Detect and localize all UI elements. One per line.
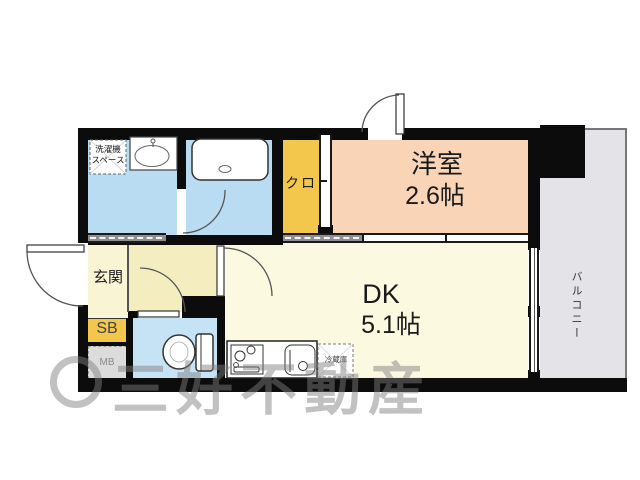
refrigerator-label: 冷蔵庫	[318, 356, 354, 364]
dk-label: DK	[321, 281, 441, 308]
kitchen-icon	[227, 341, 317, 378]
dk-size: 5.1帖	[321, 313, 461, 338]
entrance-door-icon	[27, 245, 84, 306]
meter-box-label: MB	[88, 358, 126, 368]
shoe-box-label: SB	[88, 321, 126, 337]
western-room-label: 洋室	[377, 151, 497, 177]
floorplan: 洗濯機 スペース クロ 洋室 2.6帖 DK 5.1帖 玄関 SB MB バルコ…	[0, 0, 640, 480]
dk-door-icon	[217, 246, 272, 296]
washbasin-icon	[130, 137, 177, 170]
western-room-size: 2.6帖	[377, 184, 493, 209]
top-door-icon	[362, 94, 404, 134]
toilet-icon	[163, 334, 213, 371]
entrance-label: 玄関	[88, 270, 128, 285]
washer-space-label-2: スペース	[89, 156, 127, 165]
closet-label: クロ	[283, 176, 319, 190]
washer-space-label-1: 洗濯機	[92, 145, 124, 154]
balcony-label: バルコニー	[570, 251, 581, 361]
fixtures-layer	[0, 0, 640, 480]
toilet-door-icon	[138, 268, 185, 317]
bathroom-door-icon	[177, 189, 225, 233]
bathtub-icon	[192, 139, 268, 180]
